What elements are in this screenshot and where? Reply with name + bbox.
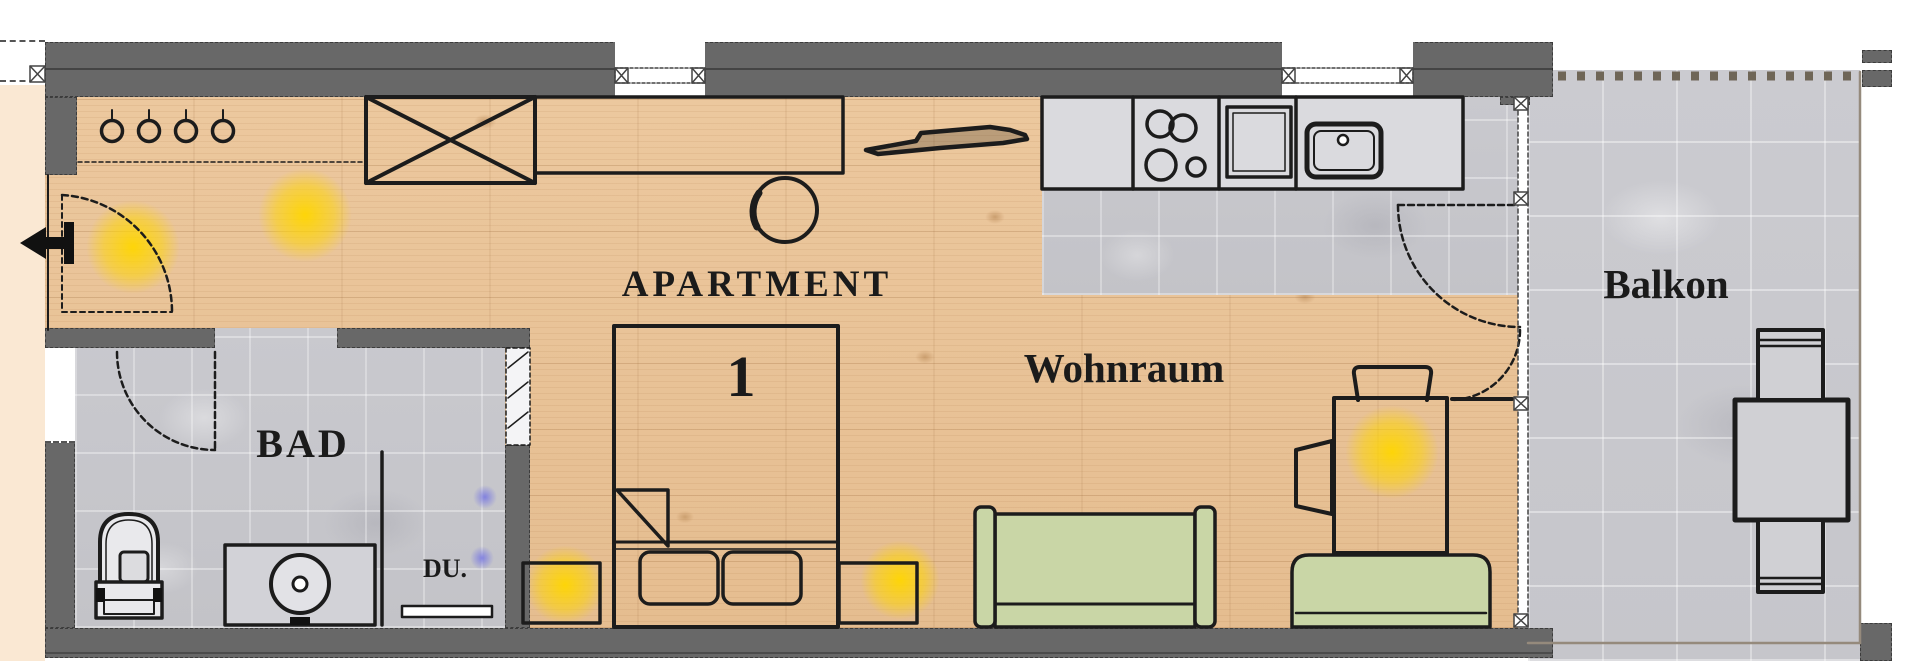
- balcony-table: [1735, 400, 1848, 520]
- apartment-label: APARTMENT: [597, 266, 917, 303]
- toilet: [96, 514, 162, 618]
- nightstand-left: [523, 563, 600, 623]
- wardrobe: [366, 97, 535, 183]
- wall-shelf: [866, 127, 1027, 154]
- apartment-number: 1: [711, 348, 771, 406]
- dining-bench: [1292, 555, 1490, 627]
- pillow-right: [723, 552, 801, 604]
- pillow-left: [640, 552, 718, 604]
- vanity-sink: [225, 545, 375, 625]
- balcony-label: Balkon: [1585, 264, 1747, 305]
- sofa: [975, 507, 1215, 627]
- dining-chair-top: [1354, 367, 1431, 400]
- blanket-fold: [617, 490, 668, 546]
- sideboard: [535, 97, 843, 173]
- glass-panel-bathroom: [506, 348, 530, 445]
- balcony-door: [1398, 205, 1520, 400]
- balcony-chair-top: [1758, 330, 1823, 400]
- floorplan-canvas: APARTMENT 1 Wohnraum BAD DU. Balkon: [0, 0, 1920, 661]
- living-room-label: Wohnraum: [994, 348, 1254, 389]
- kitchen-counter: [1042, 97, 1463, 189]
- window-sill-2: [1282, 68, 1413, 83]
- bathroom-door: [117, 352, 215, 450]
- dining-chair-left: [1296, 441, 1332, 514]
- shower: [382, 452, 492, 625]
- balcony-chair-bottom: [1758, 520, 1823, 592]
- dining-table: [1334, 398, 1447, 553]
- stool: [753, 178, 817, 242]
- coat-hooks: [78, 110, 365, 162]
- bathroom-label: BAD: [243, 424, 363, 464]
- glass-wall-detail: [1514, 97, 1528, 628]
- window-sill-1: [615, 68, 705, 83]
- nightstand-right: [839, 563, 917, 623]
- shower-label: DU.: [413, 556, 477, 582]
- neighbor-wall-connector: [30, 66, 45, 82]
- plan-linework: [0, 0, 1920, 661]
